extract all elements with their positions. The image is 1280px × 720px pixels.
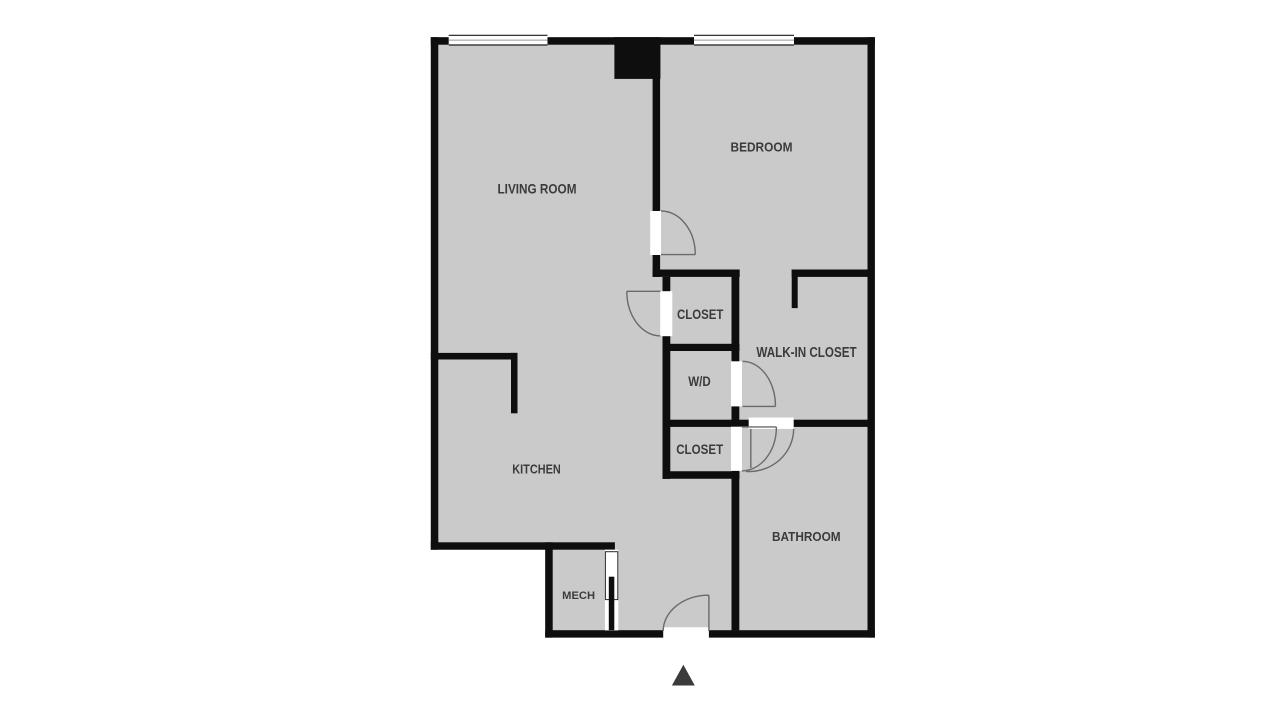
svg-text:LIVING ROOM: LIVING ROOM — [498, 181, 577, 197]
svg-text:W/D: W/D — [688, 373, 711, 389]
svg-text:MECH: MECH — [562, 590, 595, 602]
svg-text:WALK-IN CLOSET: WALK-IN CLOSET — [756, 345, 857, 361]
svg-text:BATHROOM: BATHROOM — [772, 529, 841, 544]
svg-text:BEDROOM: BEDROOM — [731, 140, 793, 155]
svg-text:KITCHEN: KITCHEN — [512, 461, 560, 476]
svg-text:CLOSET: CLOSET — [676, 442, 723, 457]
svg-text:CLOSET: CLOSET — [677, 307, 724, 323]
